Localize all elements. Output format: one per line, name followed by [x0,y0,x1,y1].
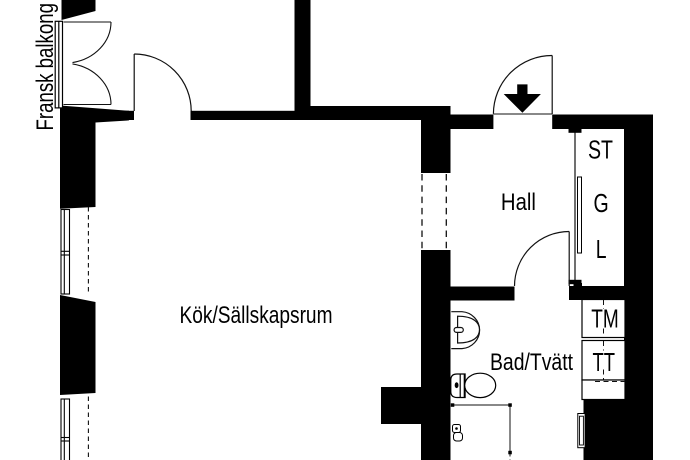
svg-text:L: L [596,236,607,264]
svg-text:Bad/Tvätt: Bad/Tvätt [490,349,573,376]
svg-text:ST: ST [588,137,613,165]
svg-text:G: G [594,190,609,218]
svg-text:TM: TM [591,306,619,334]
svg-text:Hall: Hall [501,189,536,216]
svg-text:Kök/Sällskapsrum: Kök/Sällskapsrum [180,302,333,329]
